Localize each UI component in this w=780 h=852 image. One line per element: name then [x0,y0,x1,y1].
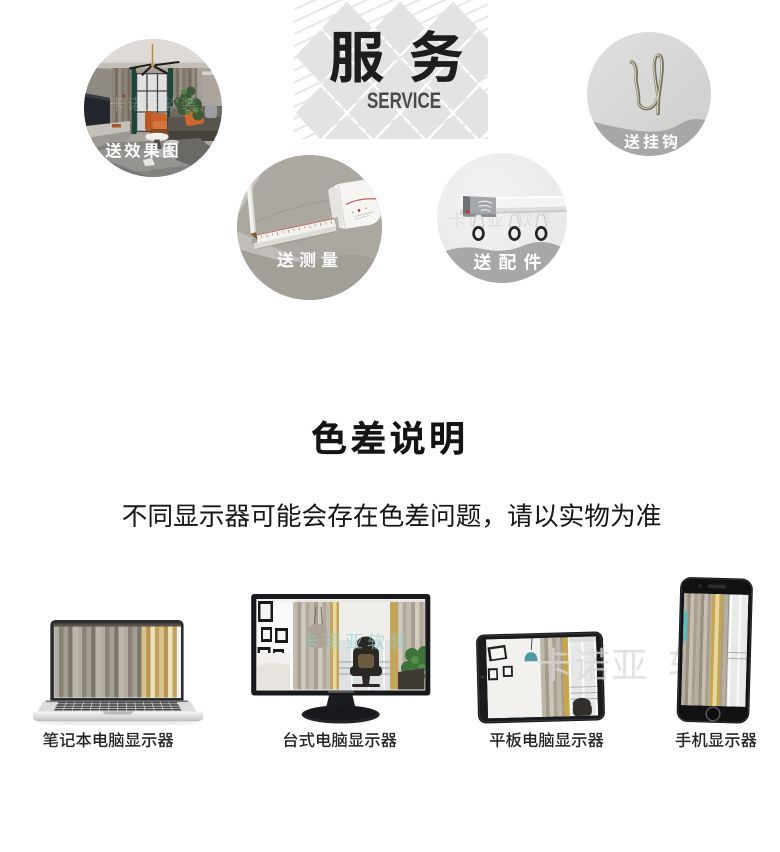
svg-text:SERVICE: SERVICE [367,88,441,113]
